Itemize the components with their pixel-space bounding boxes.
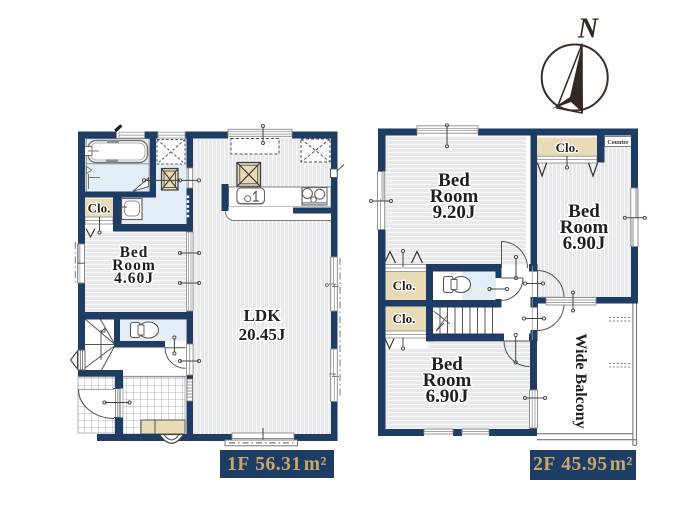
svg-text:N: N (577, 14, 600, 45)
svg-text:LDK: LDK (244, 306, 282, 325)
svg-text:Counter: Counter (607, 140, 629, 146)
svg-text:4.60J: 4.60J (114, 270, 154, 287)
svg-text:6.90J: 6.90J (426, 386, 469, 407)
svg-text:Clo.: Clo. (88, 201, 111, 216)
svg-text:2F 45.95 m²: 2F 45.95 m² (533, 454, 633, 475)
svg-text:Wide Balcony: Wide Balcony (572, 333, 589, 428)
svg-text:9.20J: 9.20J (433, 202, 476, 223)
svg-text:20.45J: 20.45J (239, 325, 286, 344)
svg-text:1F 56.31 m²: 1F 56.31 m² (227, 454, 327, 475)
svg-text:Clo.: Clo. (393, 278, 416, 293)
svg-text:6.90J: 6.90J (563, 233, 606, 254)
svg-text:Clo.: Clo. (393, 311, 416, 326)
svg-text:Clo.: Clo. (556, 140, 579, 155)
